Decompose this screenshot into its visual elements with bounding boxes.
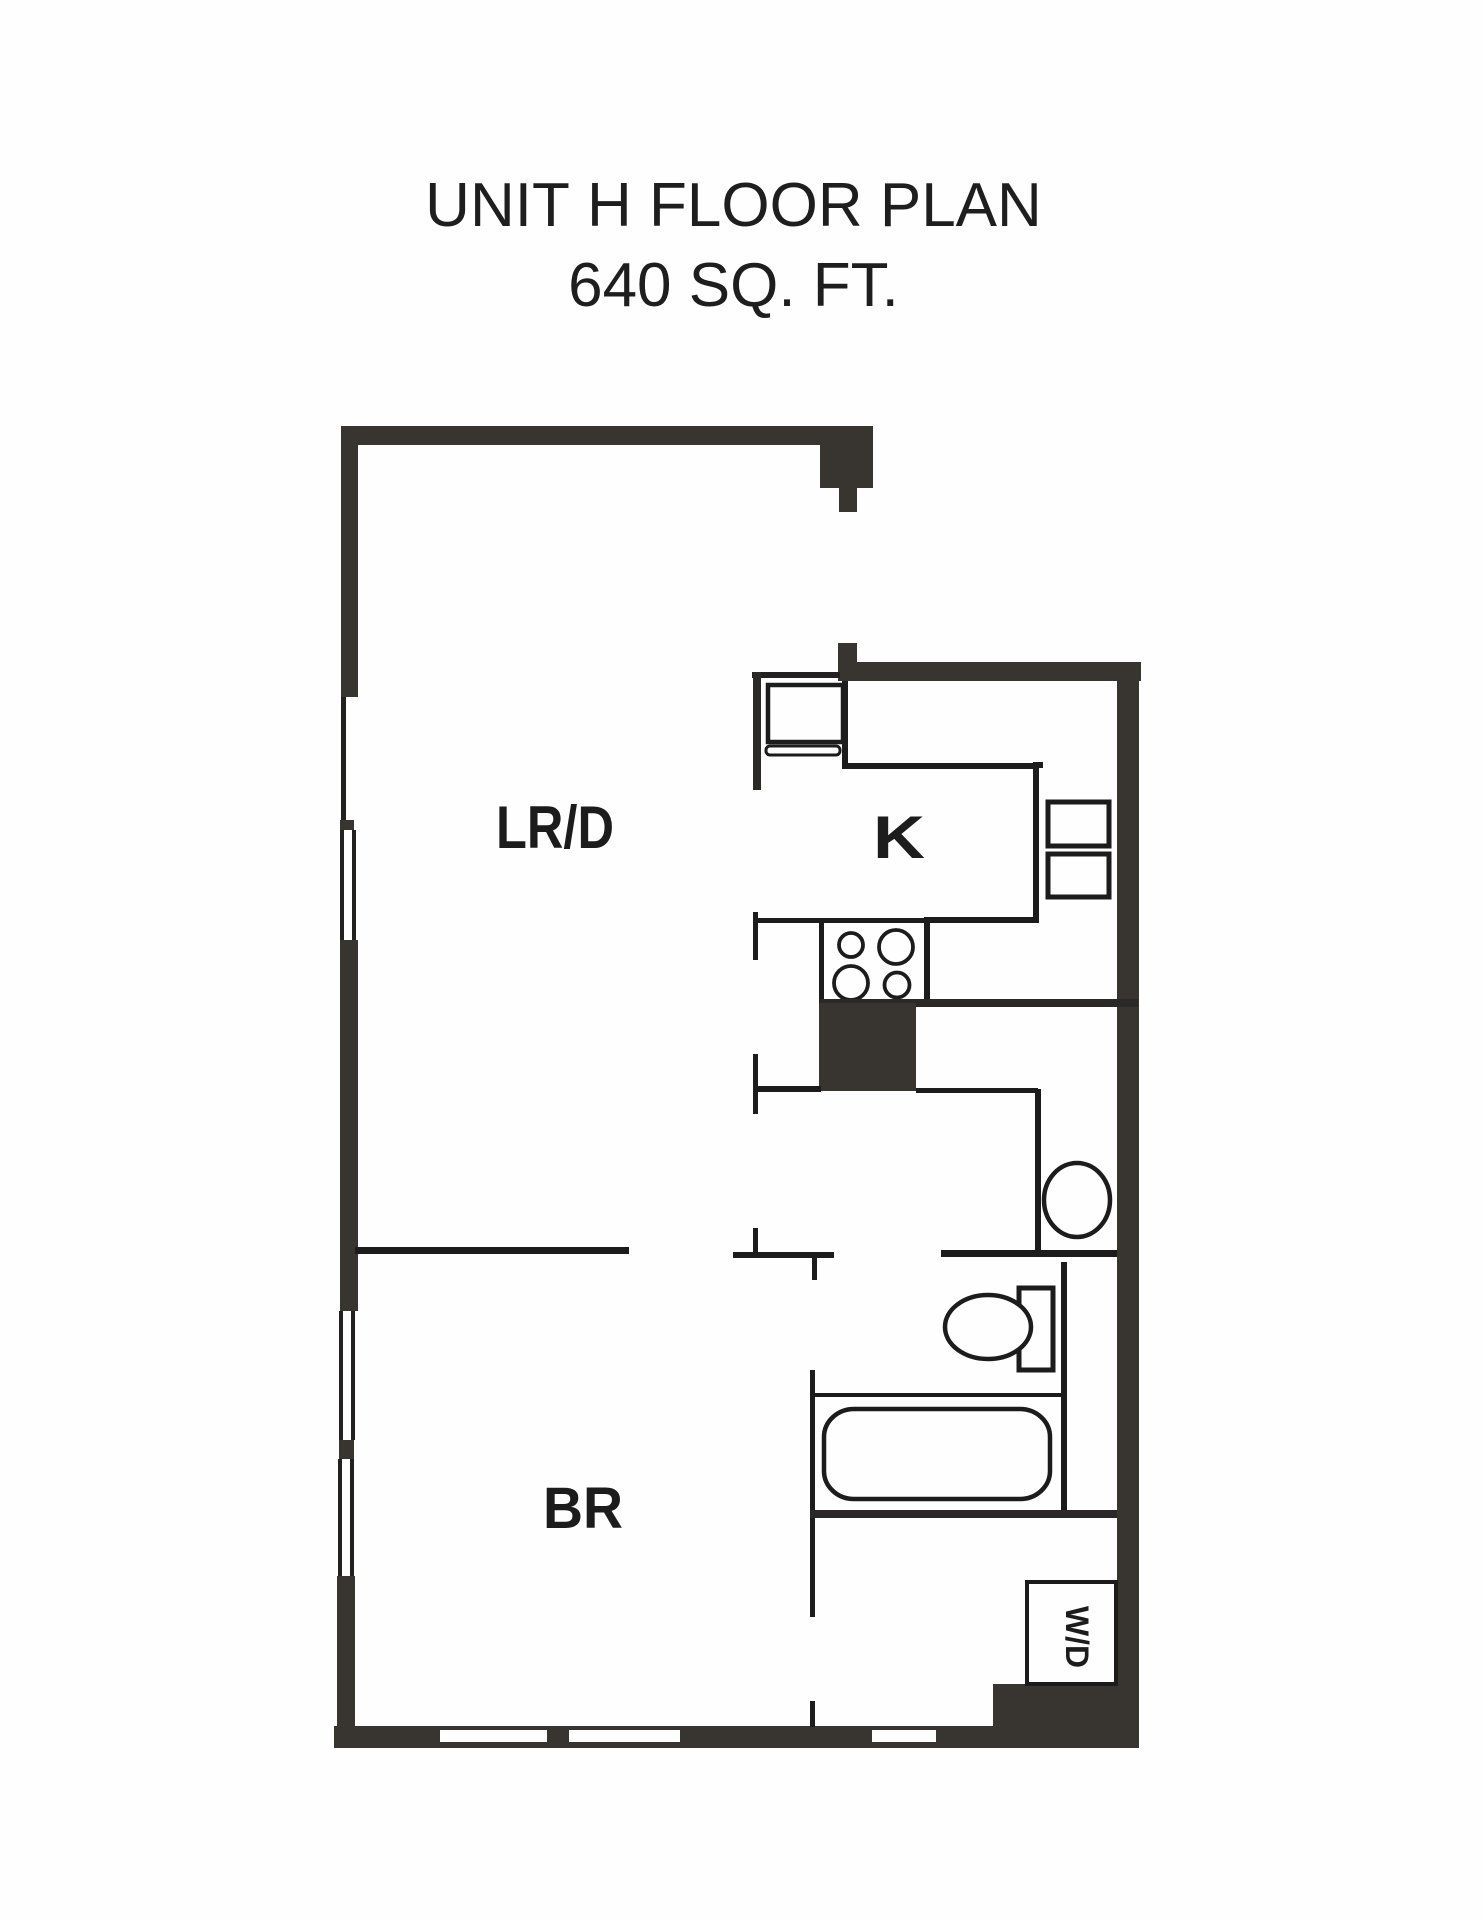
svg-text:W/D: W/D: [1059, 1606, 1095, 1668]
svg-text:K: K: [873, 804, 925, 871]
svg-text:LR/D: LR/D: [496, 794, 614, 861]
svg-text:BR: BR: [543, 1476, 623, 1541]
